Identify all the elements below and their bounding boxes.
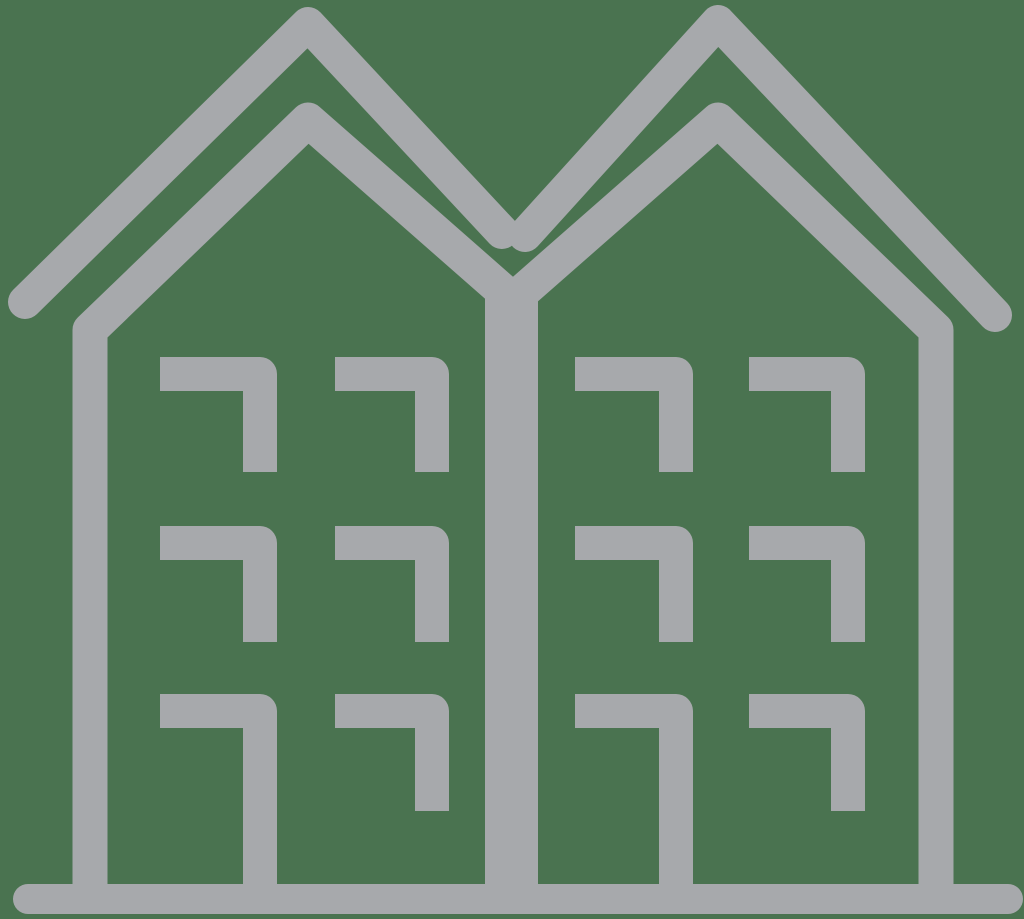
window-right-col2-row3 (749, 711, 848, 811)
icon-canvas (0, 0, 1024, 919)
window-right-col2-row2 (749, 543, 848, 642)
left-building-outline (90, 120, 513, 903)
right-building-outline (513, 120, 936, 903)
window-right-col1-row2 (575, 543, 676, 642)
window-left-col1-row3 (160, 711, 260, 905)
window-left-col1-row1 (160, 374, 260, 472)
window-left-col2-row3 (335, 711, 432, 811)
window-right-col2-row1 (749, 374, 848, 472)
window-right-col1-row3 (575, 711, 676, 905)
window-left-col2-row1 (335, 374, 432, 472)
window-left-col2-row2 (335, 543, 432, 642)
window-left-col1-row2 (160, 543, 260, 642)
window-right-col1-row1 (575, 374, 676, 472)
townhouses-icon (0, 0, 1024, 919)
